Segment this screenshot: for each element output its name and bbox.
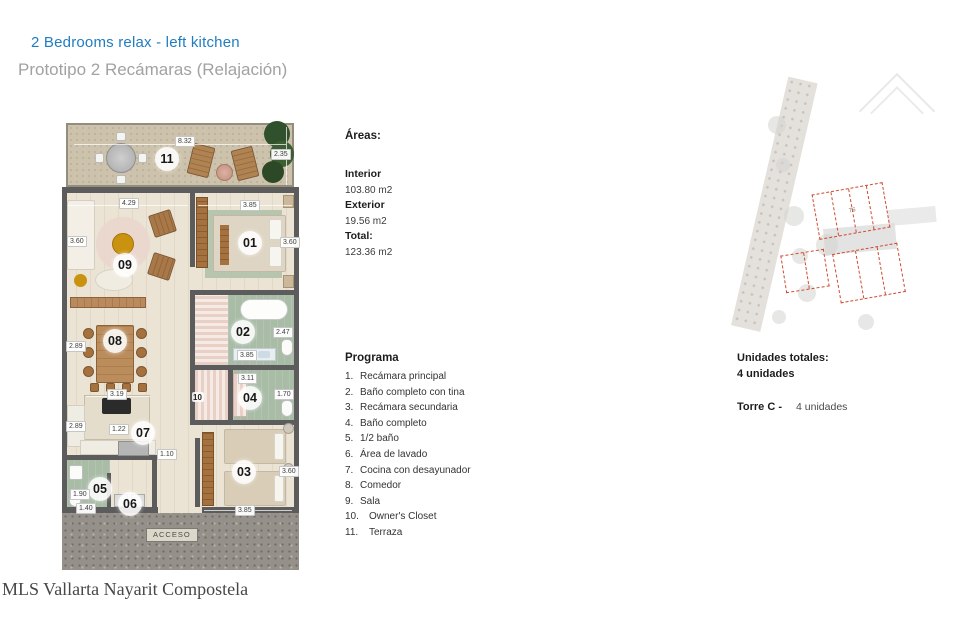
total-value: 123.36 m2 [345,245,475,261]
dining-chair [83,366,94,377]
total-label: Total: [345,229,475,245]
dim-medio-bano-depth: 1.90 [70,489,90,500]
unit-divider [830,192,839,236]
torre-label: Torre C - [737,401,782,413]
room-label-cocina: 07 [131,421,155,445]
toilet [281,400,293,417]
coffee-table [112,233,134,255]
sofa [67,200,95,270]
item-label: Recámara secundaria [360,402,458,413]
dim-cocina-depth: 2.89 [66,421,86,432]
item-label: Sala [360,496,380,507]
room-label-comedor: 08 [103,329,127,353]
site-building [887,206,936,226]
wall [190,365,299,370]
nightstand [283,195,294,208]
watermark: MLS Vallarta Nayarit Compostela [2,579,248,600]
item-label: Owner's Closet [369,511,437,522]
dining-chair [136,328,147,339]
bathtub [240,299,288,320]
wall [152,455,157,507]
dim-terraza-width: 8.32 [175,136,195,147]
areas-section: Áreas: Interior 103.80 m2 Exterior 19.56… [345,130,475,260]
site-tree [768,116,786,134]
dim-medio-bano-width: 1.40 [76,503,96,514]
pillow [269,246,282,267]
room-label-recamara-secundaria: 03 [232,460,256,484]
programa-item: 5.1/2 baño [345,431,515,447]
kitchen-stool [138,383,147,392]
wall [190,290,299,295]
dim-rec-principal-width: 3.85 [240,200,260,211]
wardrobe [196,197,208,268]
room-label-medio-bano: 05 [88,477,112,501]
interior-value: 103.80 m2 [345,183,475,199]
unit-divider [866,186,875,230]
dim-sala-depth: 3.60 [67,236,87,247]
wall [294,187,299,512]
unit-divider [855,251,864,298]
item-number: 11. [345,525,369,541]
room-label-recamara-principal: 01 [238,231,262,255]
unidades-heading: Unidades totales: [737,350,917,366]
bed-bench [220,225,229,265]
dining-chair [136,347,147,358]
dim-rec-secundaria-depth: 3.60 [279,466,299,477]
unidades-total: 4 unidades [737,366,917,382]
site-tree [772,310,786,324]
programa-item: 7.Cocina con desayunador [345,463,515,479]
room-label-bano-principal: 02 [231,320,255,344]
item-number: 6. [345,447,360,463]
item-label: 1/2 baño [360,433,399,444]
item-number: 4. [345,416,360,432]
dim-comedor-depth: 2.89 [66,341,86,352]
site-tree [784,206,804,226]
pillow [274,433,284,460]
page-title: 2 Bedrooms relax - left kitchen [31,34,240,51]
unidades-section: Unidades totales: 4 unidades Torre C -4 … [737,350,917,415]
areas-heading: Áreas: [345,130,475,142]
floor-plan: 11 8.32 2.35 ACCESO [62,115,299,570]
dim-rec-secundaria-width: 3.85 [235,505,255,516]
wall [195,438,200,507]
item-number: 10. [345,509,369,525]
programa-item: 6.Área de lavado [345,447,515,463]
wall [190,187,195,267]
wall [62,187,299,193]
room-label-owners-closet: 10 [193,393,202,402]
item-label: Terraza [369,527,402,538]
interior-label: Interior [345,167,475,183]
programa-heading: Programa [345,352,515,364]
wardrobe [202,432,214,506]
dim-rec-principal-depth: 3.60 [280,237,300,248]
item-label: Comedor [360,480,401,491]
torre-row: Torre C -4 unidades [737,399,917,415]
item-label: Recámara principal [360,371,446,382]
page: 2 Bedrooms relax - left kitchen Prototip… [0,0,967,620]
room-label-terraza: 11 [155,147,179,171]
terrace-chair [116,175,126,184]
dim-terraza-depth: 2.35 [271,149,291,160]
wall [190,420,299,425]
item-label: Área de lavado [360,449,427,460]
item-number: 1. [345,369,360,385]
dim-bano2-depth: 1.70 [274,389,294,400]
room-label-lavado: 06 [118,492,142,516]
item-label: Baño completo con tina [360,387,465,398]
unit-block-b [780,249,829,293]
dim-pasillo: 1.10 [157,449,177,460]
plant [262,161,284,183]
dim-bano2-width: 3.11 [238,373,257,384]
site-tree [776,158,790,172]
dim-cocina-isla: 1.22 [109,424,129,435]
terrace-chair [95,153,104,163]
kitchen-stool [90,383,99,392]
programa-item: 11.Terraza [345,525,515,541]
sink [258,351,270,358]
sink [69,465,83,480]
item-label: Cocina con desayunador [360,465,471,476]
programa-section: Programa 1.Recámara principal 2.Baño com… [345,352,515,541]
programa-item: 3.Recámara secundaria [345,400,515,416]
closet-main-bath [195,295,228,365]
site-tree [858,314,874,330]
terrace-chair [116,132,126,141]
unit-divider [803,253,810,289]
nightstand-lamp [283,423,294,434]
item-number: 2. [345,385,360,401]
cooktop [102,398,131,414]
side-stool [74,274,87,287]
dim-sala-width: 4.29 [119,198,139,209]
terrace-chair [138,153,147,163]
page-subtitle: Prototipo 2 Recámaras (Relajación) [18,60,287,80]
pillow [274,475,284,502]
terrace-table [106,143,136,173]
exterior-value: 19.56 m2 [345,214,475,230]
site-plan: 76 [762,88,942,338]
dim-bano-tina-width: 3.85 [237,350,257,361]
dining-chair [136,366,147,377]
programa-item: 9.Sala [345,494,515,510]
dining-chair [83,328,94,339]
item-number: 3. [345,400,360,416]
acceso-label: ACCESO [146,528,198,542]
item-number: 5. [345,431,360,447]
programa-item: 8.Comedor [345,478,515,494]
item-label: Baño completo [360,418,427,429]
console-table [70,297,146,308]
unit-divider [877,247,886,294]
wall [190,295,195,365]
toilet [281,339,293,356]
torre-value: 4 unidades [796,401,847,413]
programa-item: 10.Owner's Closet [345,509,515,525]
item-number: 8. [345,478,360,494]
dim-cocina-width: 3.19 [107,389,127,400]
room-label-sala: 09 [113,253,137,277]
unit-block-c [832,243,906,304]
room-label-bano-completo: 04 [238,386,262,410]
terrace-side-table [216,164,233,181]
item-number: 7. [345,463,360,479]
nightstand [283,275,294,288]
item-number: 9. [345,494,360,510]
programa-item: 1.Recámara principal [345,369,515,385]
exterior-label: Exterior [345,198,475,214]
dim-bano-tina-depth: 2.47 [273,327,293,338]
programa-item: 2.Baño completo con tina [345,385,515,401]
unit-block-label: 76 [849,207,857,214]
programa-item: 4.Baño completo [345,416,515,432]
